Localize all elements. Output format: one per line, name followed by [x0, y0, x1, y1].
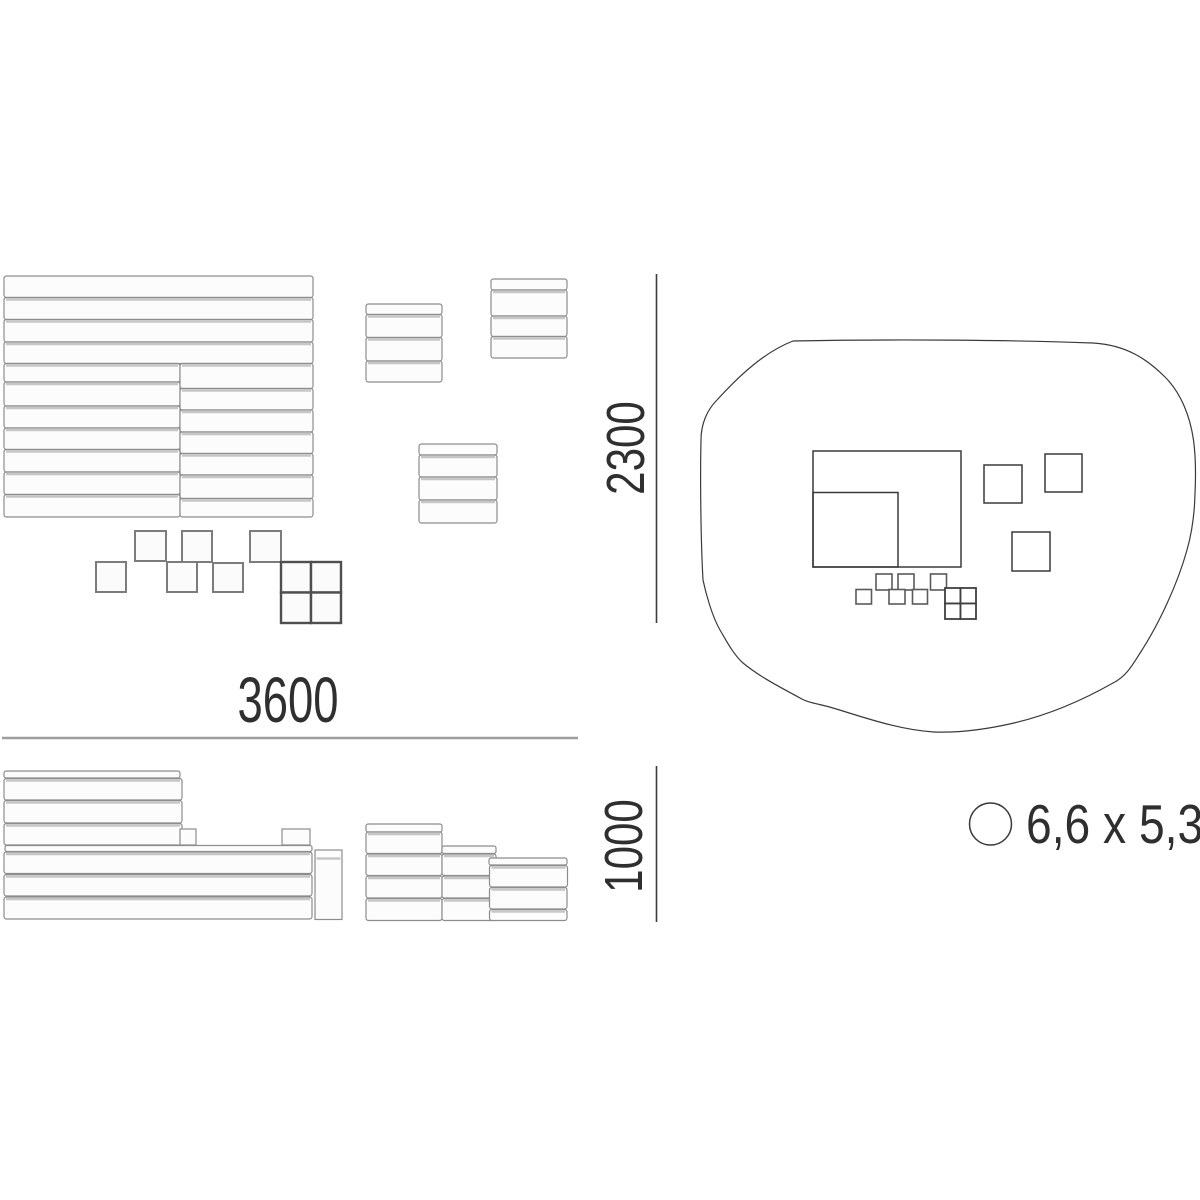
- zone-platform-inner-rect: [813, 493, 898, 568]
- zone-stepping-square: [898, 574, 914, 590]
- stepping-square: [167, 562, 197, 592]
- zone-stepping-square: [913, 590, 928, 605]
- block-slat: [491, 290, 567, 316]
- plan-slat: [4, 320, 313, 343]
- stepping-square: [96, 562, 126, 592]
- block-slat: [419, 455, 497, 477]
- block-slat: [419, 477, 497, 500]
- elev-cap: [442, 846, 496, 854]
- elev-slat: [442, 876, 496, 898]
- block-slat: [366, 315, 442, 338]
- plan-slat: [180, 475, 313, 499]
- elev-slat: [4, 852, 312, 874]
- elev-cap: [366, 824, 442, 832]
- elev-slat: [366, 854, 442, 876]
- plan-slat: [180, 432, 313, 454]
- plan-slat: [4, 382, 180, 406]
- dimension-height-label: 1000: [594, 799, 654, 893]
- elevation-view: [4, 771, 568, 921]
- plan-slat: [180, 454, 313, 476]
- elev-post: [282, 829, 310, 845]
- block-cap: [366, 304, 442, 315]
- block-slat: [419, 500, 497, 523]
- stepping-square-grid-cell: [281, 593, 311, 624]
- footprint-label: 6,6 x 5,3: [1026, 793, 1200, 855]
- elev-end-box: [315, 850, 342, 920]
- footprint-circle-icon: [970, 803, 1012, 845]
- plan-slat: [4, 428, 180, 450]
- zone-stepping-square: [856, 590, 872, 605]
- technical-drawing-canvas: 3600 2300 1000: [0, 0, 1200, 1200]
- plan-slat: [4, 495, 180, 518]
- elev-slat: [4, 779, 182, 801]
- plan-slat: [4, 450, 180, 473]
- block-cap: [419, 444, 497, 455]
- zone-platform-rect: [813, 451, 961, 567]
- zone-block-square: [984, 465, 1022, 503]
- block-cap: [491, 279, 567, 290]
- plan-slat: [4, 406, 180, 428]
- zone-stepping-square: [889, 590, 905, 605]
- dimension-width: 3600: [2, 664, 578, 738]
- stepping-square-grid-cell: [311, 593, 341, 624]
- dimension-width-label: 3600: [237, 664, 338, 735]
- elev-cap: [4, 771, 180, 778]
- plan-small-block-b: [491, 279, 567, 358]
- zone-stepping-grid-cell: [961, 588, 977, 604]
- stepping-square: [213, 563, 243, 592]
- zone-stepping-square: [931, 574, 947, 590]
- zone-stepping-grid-cell: [945, 604, 961, 620]
- safety-zone: [701, 340, 1196, 732]
- stepping-square: [135, 531, 166, 561]
- plan-small-block-c: [419, 444, 497, 523]
- stepping-square: [250, 531, 281, 562]
- dimension-depth: 2300: [596, 274, 656, 623]
- elev-slat: [4, 875, 312, 897]
- zone-block-square: [1012, 532, 1050, 571]
- plan-slat: [4, 472, 180, 495]
- elev-slat: [366, 899, 442, 921]
- elev-slat: [4, 801, 182, 824]
- elev-slat: [4, 824, 182, 846]
- zone-stepping-grid-cell: [945, 588, 961, 604]
- elev-slat: [490, 866, 568, 888]
- dimension-depth-label: 2300: [596, 401, 656, 495]
- plan-small-block-a: [366, 304, 442, 382]
- zone-stepping-square: [876, 574, 892, 590]
- elev-slat: [442, 899, 496, 921]
- footprint-legend: 6,6 x 5,3: [970, 793, 1200, 855]
- plan-view: [4, 276, 313, 517]
- plan-slat: [180, 410, 313, 432]
- elev-slat: [490, 888, 568, 910]
- stepping-square-grid-cell: [311, 562, 341, 593]
- plan-slat: [180, 364, 313, 389]
- dimension-height: 1000: [594, 766, 656, 922]
- safety-zone-outline: [701, 340, 1196, 732]
- elev-cap: [489, 858, 567, 865]
- elev-slat: [4, 897, 312, 919]
- zone-stepping-stones: [856, 574, 976, 619]
- elev-slat: [442, 854, 496, 876]
- zone-block-square: [1045, 454, 1082, 492]
- stepping-square-grid-cell: [281, 562, 311, 593]
- elev-cap: [5, 846, 312, 852]
- zone-stepping-grid-cell: [961, 604, 977, 620]
- block-slat: [366, 338, 442, 362]
- plan-slat: [4, 276, 313, 298]
- stepping-square: [182, 531, 212, 562]
- plan-stepping-stones: [96, 531, 341, 623]
- elev-post: [180, 829, 196, 845]
- elev-slat: [366, 876, 442, 898]
- block-slat: [491, 337, 567, 359]
- elev-slat: [366, 832, 442, 854]
- plan-slat: [180, 389, 313, 411]
- plan-slat: [4, 342, 313, 364]
- plan-slat: [4, 298, 313, 320]
